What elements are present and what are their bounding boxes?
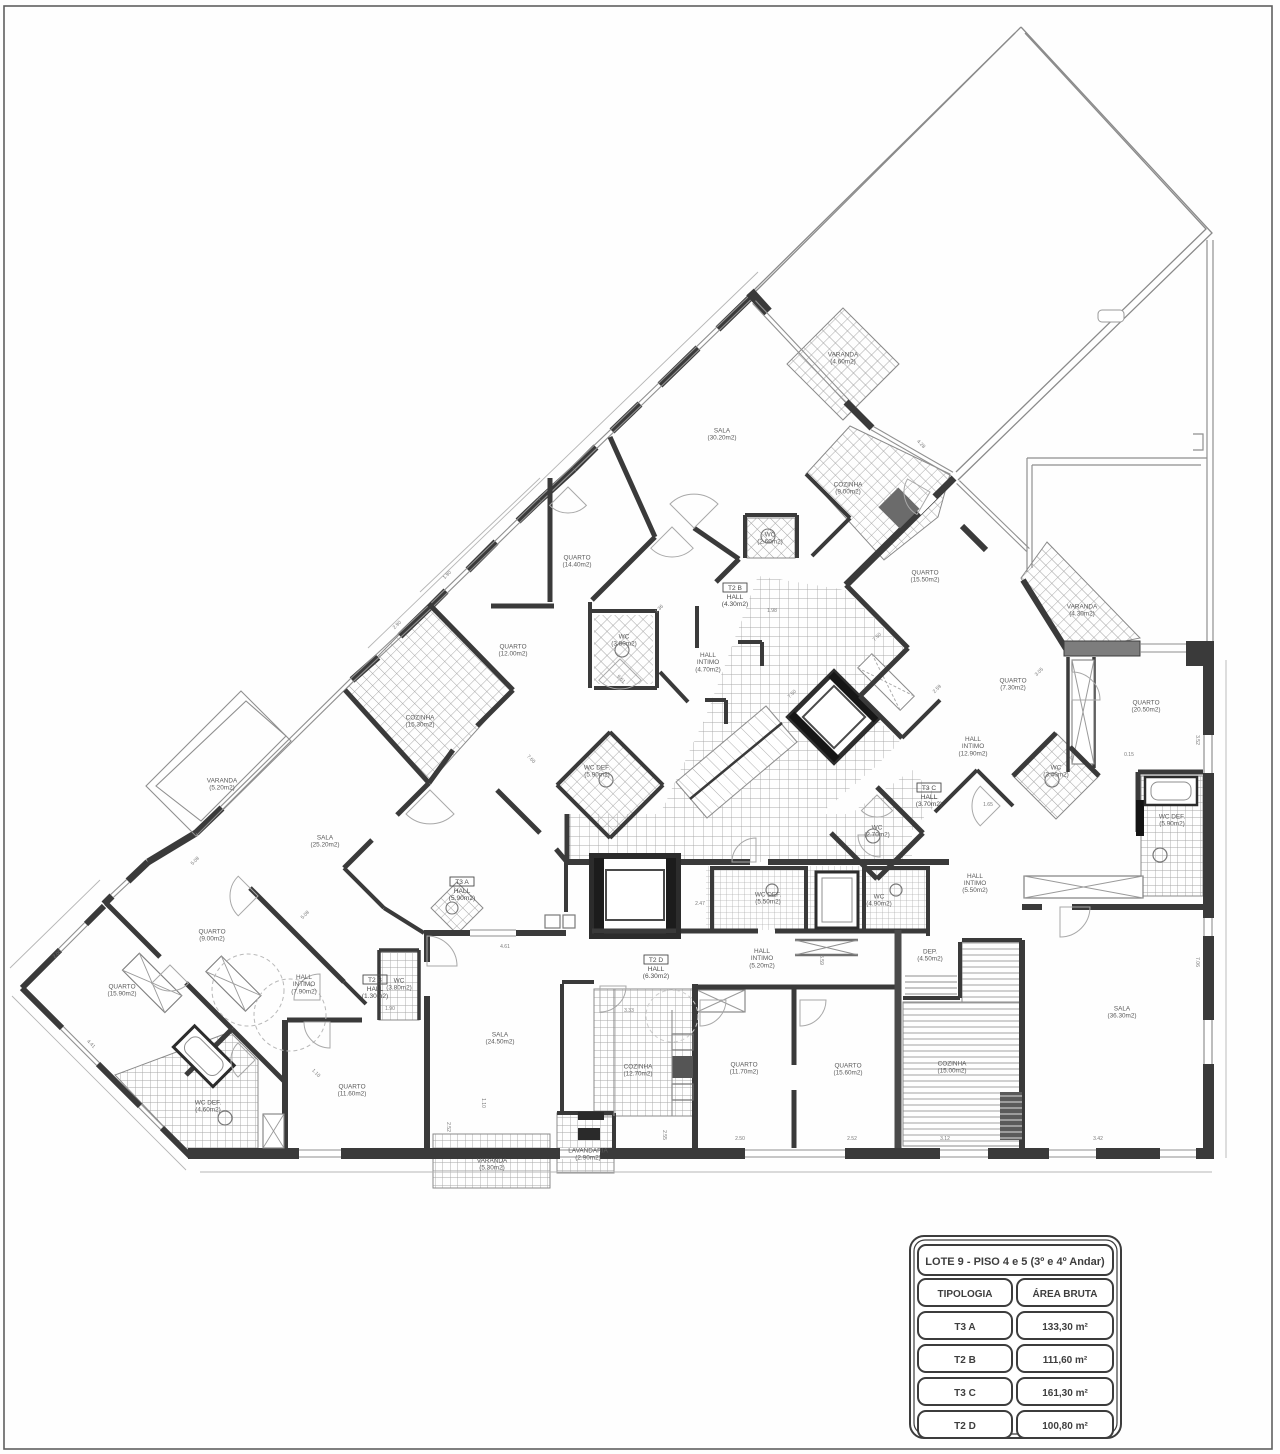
svg-text:LAVANDARIA: LAVANDARIA [568,1148,608,1155]
svg-text:2.52: 2.52 [445,1122,451,1132]
svg-text:LOTE 9 - PISO 4 e 5 (3º e 4º A: LOTE 9 - PISO 4 e 5 (3º e 4º Andar) [925,1256,1105,1268]
svg-text:(5.20m2): (5.20m2) [749,962,775,969]
svg-text:(7.90m2): (7.90m2) [291,988,317,995]
svg-text:(5.90m2): (5.90m2) [1159,821,1185,828]
svg-text:0.15: 0.15 [1124,752,1134,758]
svg-text:(4.60m2): (4.60m2) [195,1107,221,1114]
svg-text:HALL: HALL [965,736,981,743]
svg-text:WC: WC [874,894,885,901]
svg-text:WC DEF.: WC DEF. [755,892,781,899]
svg-text:(2.70m2): (2.70m2) [864,832,890,839]
svg-text:(14.40m2): (14.40m2) [562,562,591,569]
svg-text:QUARTO: QUARTO [499,644,526,651]
svg-text:COZINHA: COZINHA [834,482,863,489]
svg-text:(11.70m2): (11.70m2) [730,1069,759,1076]
svg-text:T2 B: T2 B [954,1355,976,1366]
svg-text:DEP.: DEP. [923,949,937,956]
svg-text:QUARTO: QUARTO [108,984,135,991]
svg-text:(4.30m2): (4.30m2) [722,601,748,608]
svg-text:T3 C: T3 C [954,1388,976,1399]
svg-text:(12.70m2): (12.70m2) [623,1071,652,1078]
svg-text:7.06: 7.06 [1194,957,1200,967]
svg-text:(5.30m2): (5.30m2) [479,1165,505,1172]
svg-text:(12.00m2): (12.00m2) [498,651,527,658]
svg-text:QUARTO: QUARTO [198,929,225,936]
svg-text:WC: WC [394,978,405,985]
svg-text:SALA: SALA [714,428,731,435]
svg-text:(9.00m2): (9.00m2) [835,489,861,496]
svg-text:(7.30m2): (7.30m2) [1000,685,1026,692]
svg-text:HALL: HALL [921,794,938,801]
svg-text:SALA: SALA [1114,1006,1131,1013]
svg-text:QUARTO: QUARTO [911,570,938,577]
svg-text:(4.30m2): (4.30m2) [1069,611,1095,618]
svg-text:133,30 m²: 133,30 m² [1042,1322,1088,1333]
svg-text:(11.60m2): (11.60m2) [338,1091,367,1098]
svg-text:INTIMO: INTIMO [964,880,986,887]
svg-text:(2.90m2): (2.90m2) [575,1155,601,1162]
svg-text:(4.50m2): (4.50m2) [917,956,943,963]
svg-text:QUARTO: QUARTO [338,1084,365,1091]
svg-text:(20.50m2): (20.50m2) [1131,707,1160,714]
svg-text:(5.90m2): (5.90m2) [449,895,475,902]
svg-text:QUARTO: QUARTO [563,555,590,562]
svg-text:3.52: 3.52 [1194,735,1200,745]
svg-text:QUARTO: QUARTO [730,1062,757,1069]
svg-text:HALL: HALL [700,652,716,659]
svg-text:T2 B: T2 B [368,977,383,984]
svg-text:INTIMO: INTIMO [962,743,984,750]
svg-text:HALL: HALL [296,974,312,981]
svg-text:(4.90m2): (4.90m2) [866,901,892,908]
svg-text:100,80 m²: 100,80 m² [1042,1421,1088,1432]
svg-text:1.90: 1.90 [385,1006,395,1012]
svg-text:(5.20m2): (5.20m2) [209,785,235,792]
svg-text:(15.60m2): (15.60m2) [833,1070,862,1077]
svg-text:COZINHA: COZINHA [406,715,435,722]
svg-text:T2 D: T2 D [649,957,664,964]
svg-text:5.59: 5.59 [818,955,824,965]
svg-text:2.52: 2.52 [847,1136,857,1142]
svg-text:3.12: 3.12 [940,1136,950,1142]
svg-text:(15.50m2): (15.50m2) [910,577,939,584]
svg-text:(1.30m2): (1.30m2) [362,993,388,1000]
svg-text:(6.30m2): (6.30m2) [643,973,669,980]
svg-text:2.47: 2.47 [695,901,705,907]
svg-text:(25.20m2): (25.20m2) [310,842,339,849]
svg-text:(30.20m2): (30.20m2) [707,435,736,442]
svg-text:111,60 m²: 111,60 m² [1043,1355,1088,1366]
svg-text:(3.80m2): (3.80m2) [386,985,412,992]
svg-text:(4.60m2): (4.60m2) [830,359,856,366]
svg-text:(9.00m2): (9.00m2) [199,936,225,943]
svg-text:(15.30m2): (15.30m2) [405,722,434,729]
svg-text:QUARTO: QUARTO [834,1063,861,1070]
svg-text:INTIMO: INTIMO [697,659,719,666]
svg-text:VARANDA: VARANDA [1067,604,1098,611]
svg-text:QUARTO: QUARTO [999,678,1026,685]
svg-text:(3.70m2): (3.70m2) [916,801,942,808]
svg-text:COZINHA: COZINHA [938,1061,967,1068]
svg-text:(4.70m2): (4.70m2) [695,666,721,673]
svg-text:T3 A: T3 A [954,1322,975,1333]
svg-text:SALA: SALA [492,1032,509,1039]
svg-text:HALL: HALL [967,873,983,880]
svg-text:T3 A: T3 A [455,879,469,886]
svg-text:VARANDA: VARANDA [207,778,238,785]
svg-text:HALL: HALL [727,594,744,601]
svg-text:HALL: HALL [367,986,384,993]
svg-text:(24.50m2): (24.50m2) [485,1039,514,1046]
svg-text:161,30 m²: 161,30 m² [1042,1388,1088,1399]
svg-text:WC: WC [1051,765,1062,772]
svg-text:3.33: 3.33 [624,1008,634,1014]
svg-text:WC: WC [619,634,630,641]
svg-text:INTIMO: INTIMO [751,955,773,962]
svg-text:SALA: SALA [317,835,334,842]
svg-text:(36.30m2): (36.30m2) [1107,1013,1136,1020]
svg-text:WC DEF.: WC DEF. [1159,814,1185,821]
svg-text:HALL: HALL [648,966,665,973]
svg-text:4.61: 4.61 [500,944,510,950]
svg-text:T2 B: T2 B [728,585,743,592]
svg-text:T2 D: T2 D [954,1421,976,1432]
svg-text:1.98: 1.98 [767,608,777,614]
svg-text:(3.80m2): (3.80m2) [611,641,637,648]
svg-text:INTIMO: INTIMO [293,981,315,988]
svg-text:TIPOLOGIA: TIPOLOGIA [938,1289,993,1300]
svg-text:3.42: 3.42 [1093,1136,1103,1142]
svg-text:VARANDA: VARANDA [477,1158,508,1165]
svg-text:HALL: HALL [454,888,471,895]
svg-text:(12.90m2): (12.90m2) [958,750,987,757]
svg-text:(5.50m2): (5.50m2) [962,887,988,894]
svg-text:(2.60m2): (2.60m2) [757,539,783,546]
svg-text:(5.50m2): (5.50m2) [755,899,781,906]
svg-text:1.65: 1.65 [983,802,993,808]
svg-text:HALL: HALL [754,948,770,955]
svg-text:T3 C: T3 C [922,785,937,792]
svg-text:ÁREA BRUTA: ÁREA BRUTA [1033,1287,1098,1300]
svg-text:2.55: 2.55 [661,1130,667,1140]
svg-text:2.50: 2.50 [735,1136,745,1142]
svg-text:WC DEF.: WC DEF. [195,1100,221,1107]
svg-text:(15.00m2): (15.00m2) [937,1068,966,1075]
svg-text:QUARTO: QUARTO [1132,700,1159,707]
svg-text:VARANDA: VARANDA [828,352,859,359]
svg-text:COZINHA: COZINHA [624,1064,653,1071]
svg-text:(15.90m2): (15.90m2) [107,991,136,998]
svg-text:1.10: 1.10 [480,1098,486,1108]
svg-text:WC DEF.: WC DEF. [584,765,610,772]
